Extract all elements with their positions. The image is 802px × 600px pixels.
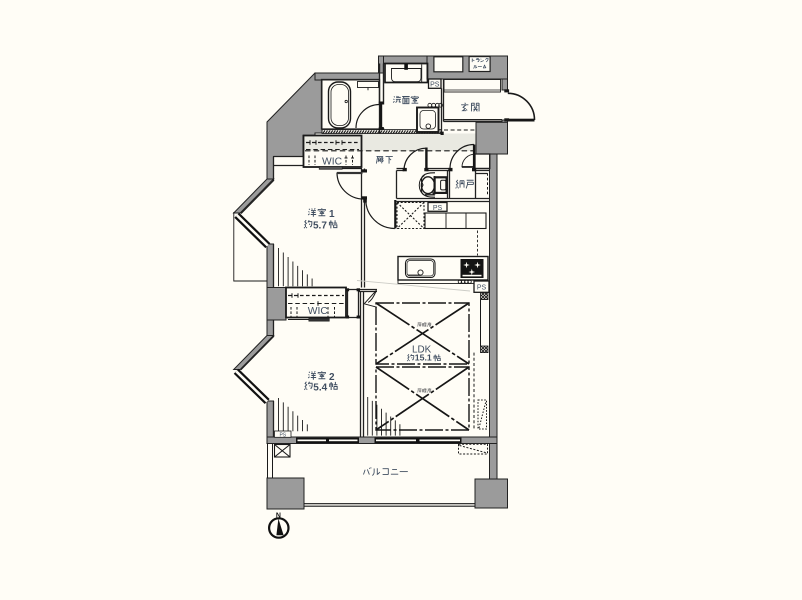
svg-text:5.4: 5.4 bbox=[313, 382, 327, 393]
svg-text:PS: PS bbox=[430, 82, 440, 89]
svg-text:PS: PS bbox=[477, 285, 487, 292]
svg-text:WIC: WIC bbox=[322, 157, 343, 168]
svg-text:15.1: 15.1 bbox=[415, 353, 432, 363]
svg-text:N: N bbox=[276, 513, 281, 520]
svg-text:PS: PS bbox=[433, 205, 443, 212]
svg-text:2: 2 bbox=[329, 372, 335, 383]
svg-text:1: 1 bbox=[329, 209, 335, 220]
svg-text:WIC: WIC bbox=[308, 306, 329, 317]
svg-text:5.7: 5.7 bbox=[313, 221, 327, 232]
svg-text:PS: PS bbox=[279, 432, 286, 438]
